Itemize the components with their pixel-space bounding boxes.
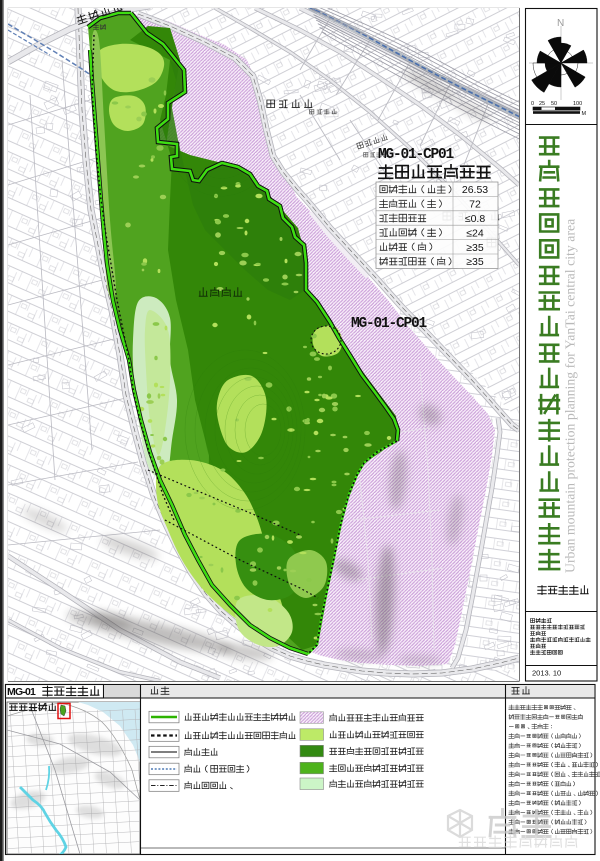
svg-text:100: 100: [573, 101, 582, 107]
svg-text:25: 25: [539, 101, 545, 107]
svg-text:≥35: ≥35: [466, 242, 484, 254]
svg-text:26.53: 26.53: [462, 184, 488, 196]
svg-text:72: 72: [469, 199, 481, 211]
svg-text:Urban mountain protection plan: Urban mountain protection planning for Y…: [563, 219, 578, 573]
svg-text:MG-01: MG-01: [7, 686, 36, 698]
svg-text:≥35: ≥35: [466, 256, 484, 268]
svg-text:2013. 10: 2013. 10: [532, 669, 561, 678]
svg-text:0: 0: [531, 101, 534, 107]
svg-text:MG-01-CP01: MG-01-CP01: [378, 147, 455, 163]
svg-text:N: N: [557, 18, 564, 29]
svg-text:M: M: [582, 111, 587, 117]
svg-text:50: 50: [551, 101, 557, 107]
svg-text:≤0.8: ≤0.8: [465, 213, 486, 225]
svg-text:MG-01-CP01: MG-01-CP01: [351, 316, 428, 332]
svg-text:≤24: ≤24: [466, 227, 484, 239]
